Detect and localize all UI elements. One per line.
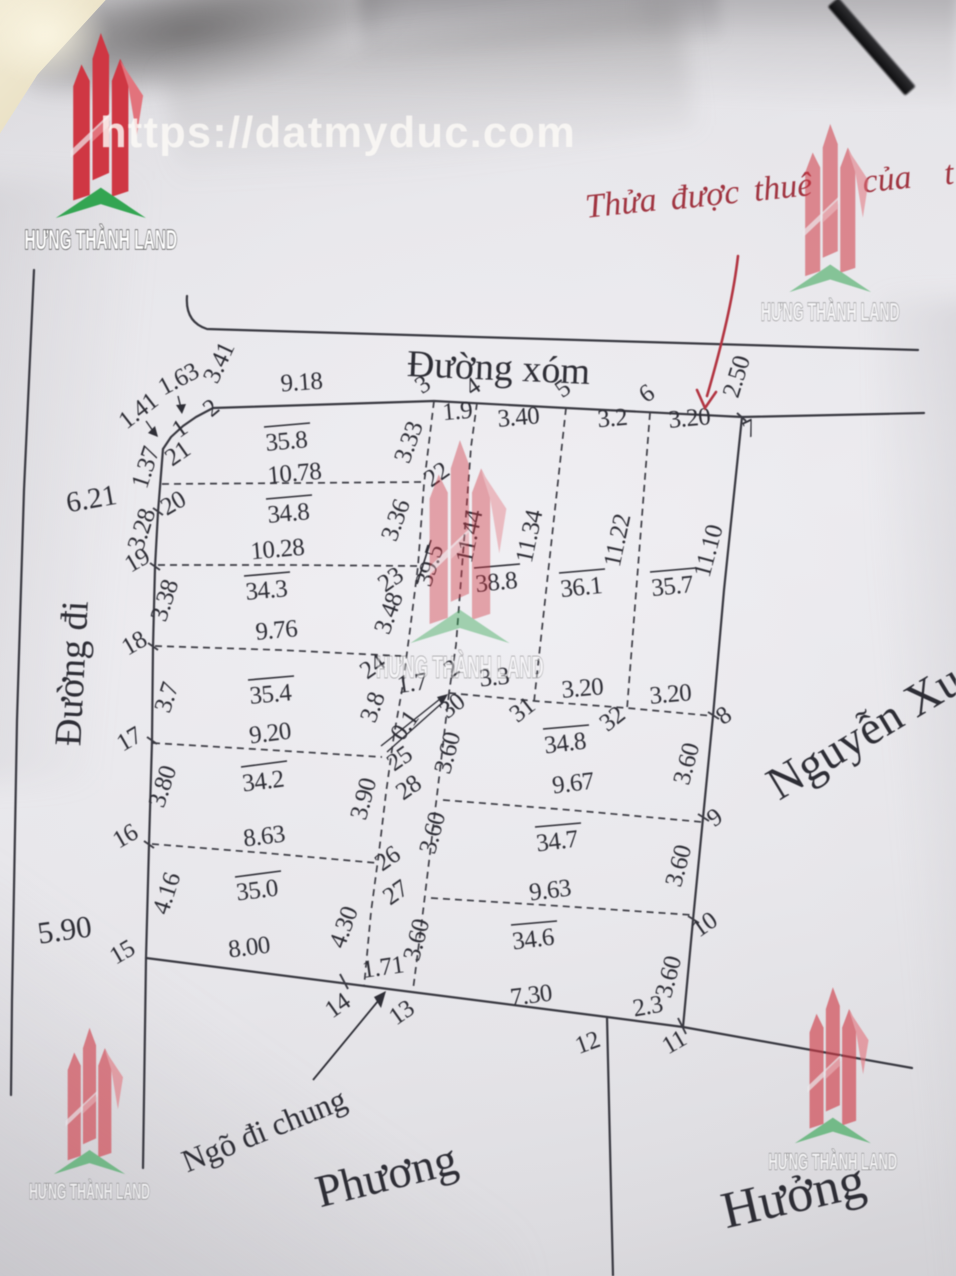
- svg-text:4.30: 4.30: [324, 903, 364, 951]
- svg-text:3.38: 3.38: [146, 577, 185, 625]
- svg-text:20: 20: [156, 486, 190, 521]
- svg-text:15: 15: [105, 935, 139, 970]
- svg-text:3.40: 3.40: [496, 402, 540, 433]
- svg-text:2.3: 2.3: [631, 991, 665, 1023]
- svg-text:3.20: 3.20: [648, 679, 692, 710]
- svg-text:của: của: [861, 159, 914, 201]
- svg-text:2.50: 2.50: [718, 353, 756, 401]
- svg-text:10.28: 10.28: [249, 534, 305, 566]
- svg-text:Đường đi: Đường đi: [47, 600, 97, 747]
- svg-text:9.76: 9.76: [254, 615, 298, 646]
- svg-text:27: 27: [378, 875, 413, 911]
- svg-text:3.60: 3.60: [668, 740, 705, 787]
- svg-text:9.63: 9.63: [528, 875, 573, 907]
- svg-text:3.20: 3.20: [560, 673, 604, 704]
- svg-text:14: 14: [320, 987, 356, 1023]
- svg-text:3.36: 3.36: [376, 496, 416, 544]
- svg-text:10.78: 10.78: [266, 458, 322, 490]
- svg-text:3.80: 3.80: [144, 763, 183, 811]
- svg-text:được: được: [669, 174, 741, 218]
- svg-text:25: 25: [382, 741, 417, 777]
- svg-text:35.4: 35.4: [248, 679, 293, 710]
- svg-text:5.90: 5.90: [35, 908, 94, 950]
- svg-text:https://datmyduc.com: https://datmyduc.com: [100, 109, 576, 157]
- svg-text:9: 9: [702, 803, 727, 832]
- svg-text:7.30: 7.30: [509, 980, 554, 1012]
- svg-text:11.10: 11.10: [689, 522, 729, 580]
- svg-text:21: 21: [160, 436, 195, 472]
- svg-text:3.60: 3.60: [660, 842, 697, 889]
- svg-text:Phương: Phương: [310, 1133, 462, 1217]
- svg-text:1.9: 1.9: [441, 397, 473, 426]
- svg-text:3.33: 3.33: [389, 418, 429, 466]
- svg-text:35.0: 35.0: [235, 875, 280, 907]
- svg-text:9.20: 9.20: [248, 718, 293, 750]
- svg-text:34.3: 34.3: [244, 575, 288, 606]
- svg-text:11.34: 11.34: [511, 507, 549, 565]
- svg-text:3.2: 3.2: [596, 404, 628, 433]
- svg-text:0.1: 0.1: [385, 706, 424, 746]
- svg-text:3.60: 3.60: [398, 916, 435, 963]
- svg-text:11: 11: [658, 1025, 691, 1060]
- svg-text:3.48: 3.48: [369, 589, 409, 637]
- svg-text:7: 7: [739, 414, 761, 444]
- svg-text:26: 26: [370, 841, 405, 877]
- svg-text:35.7: 35.7: [650, 571, 694, 602]
- svg-text:30: 30: [435, 688, 471, 724]
- svg-text:1.41: 1.41: [114, 388, 164, 435]
- svg-text:34.2: 34.2: [241, 766, 286, 798]
- svg-text:34.7: 34.7: [535, 826, 580, 858]
- svg-text:9.67: 9.67: [551, 768, 596, 800]
- svg-text:Thửa: Thửa: [583, 181, 658, 225]
- svg-text:13: 13: [384, 995, 419, 1031]
- svg-text:3.7: 3.7: [149, 679, 184, 716]
- svg-text:32: 32: [595, 701, 631, 737]
- svg-text:36.1: 36.1: [559, 572, 603, 603]
- svg-text:3.90: 3.90: [345, 775, 382, 822]
- svg-text:16: 16: [108, 819, 142, 854]
- svg-text:34.8: 34.8: [266, 498, 310, 529]
- svg-text:8.00: 8.00: [227, 932, 272, 964]
- svg-text:17: 17: [112, 722, 146, 757]
- svg-text:11.22: 11.22: [599, 512, 636, 569]
- svg-text:9.18: 9.18: [280, 368, 324, 398]
- svg-text:3.60: 3.60: [414, 809, 451, 856]
- svg-text:3.41: 3.41: [198, 338, 240, 387]
- svg-text:1.63: 1.63: [154, 358, 204, 401]
- svg-text:18: 18: [117, 626, 151, 661]
- svg-text:t: t: [942, 155, 956, 193]
- svg-text:4.16: 4.16: [148, 870, 187, 918]
- svg-text:35.8: 35.8: [264, 426, 308, 457]
- svg-text:6.21: 6.21: [64, 479, 120, 519]
- svg-text:3.60: 3.60: [429, 729, 466, 776]
- svg-text:34.8: 34.8: [543, 728, 588, 760]
- svg-text:3.8: 3.8: [355, 689, 391, 726]
- svg-text:8.63: 8.63: [242, 821, 287, 853]
- svg-text:34.6: 34.6: [511, 924, 556, 956]
- svg-text:12: 12: [572, 1026, 604, 1060]
- svg-text:6: 6: [634, 379, 659, 408]
- svg-text:Nguyễn Xu: Nguyễn Xu: [758, 654, 956, 811]
